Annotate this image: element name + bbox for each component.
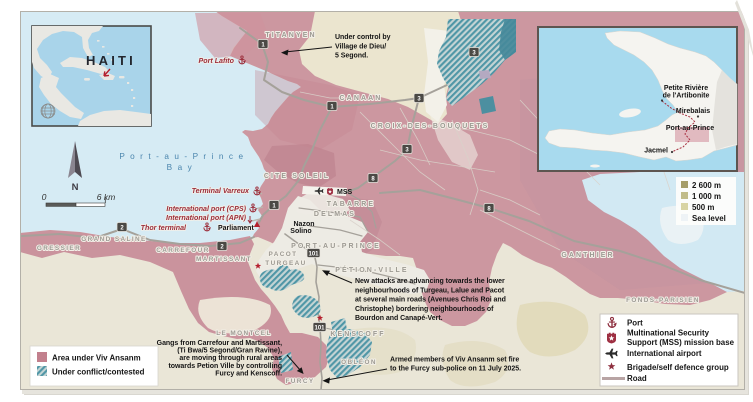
svg-text:Brigade/self defence group: Brigade/self defence group	[627, 363, 729, 372]
svg-text:LE MONTCEL: LE MONTCEL	[216, 330, 272, 337]
svg-text:KENSCOFF: KENSCOFF	[330, 331, 385, 338]
svg-text:CITE SOLEIL: CITE SOLEIL	[264, 173, 330, 180]
svg-text:1 000 m: 1 000 m	[692, 192, 721, 201]
svg-text:Solino: Solino	[290, 228, 311, 235]
svg-text:International port (CPS): International port (CPS)	[166, 205, 246, 213]
svg-text:Area under Viv Ansanm: Area under Viv Ansanm	[52, 354, 141, 363]
svg-text:International airport: International airport	[627, 349, 702, 358]
svg-text:Armed members of Viv Ansanm se: Armed members of Viv Ansanm set fire	[390, 357, 519, 364]
svg-text:MSS: MSS	[337, 189, 353, 196]
svg-text:Christophe) bordering neighbou: Christophe) bordering neighbourhoods of	[355, 306, 494, 313]
svg-text:PÉTION-VILLE: PÉTION-VILLE	[335, 265, 408, 274]
svg-text:de l'Artibonite: de l'Artibonite	[663, 93, 710, 100]
svg-text:FONDS-PARISIEN: FONDS-PARISIEN	[626, 297, 700, 304]
svg-text:TITANYEN: TITANYEN	[265, 32, 316, 39]
svg-text:Nazon: Nazon	[294, 221, 315, 228]
svg-text:N: N	[72, 182, 79, 193]
svg-text:neighbourhoods of Turgeau, Lal: neighbourhoods of Turgeau, Lalue and Pac…	[355, 287, 505, 294]
svg-text:(Ti Bwa/5 Segond/Gran Ravine),: (Ti Bwa/5 Segond/Gran Ravine),	[177, 348, 282, 355]
svg-text:FURCY: FURCY	[285, 378, 314, 385]
svg-text:Under control by: Under control by	[335, 34, 391, 41]
svg-text:Mirebalais: Mirebalais	[676, 108, 710, 115]
svg-text:towards Petion Ville by contro: towards Petion Ville by controlling	[168, 363, 282, 370]
svg-text:MARTISSANT: MARTISSANT	[196, 256, 252, 263]
svg-text:are moving through rural areas: are moving through rural areas	[179, 355, 282, 362]
svg-text:Sea level: Sea level	[692, 214, 726, 223]
svg-text:HAITI: HAITI	[86, 53, 136, 68]
svg-text:Bourdon and Canapé-Vert.: Bourdon and Canapé-Vert.	[355, 315, 443, 322]
svg-text:Road: Road	[627, 374, 647, 383]
svg-text:Port: Port	[627, 319, 643, 328]
svg-text:Furcy and Kenscoff.: Furcy and Kenscoff.	[215, 370, 282, 377]
svg-text:CANAAN: CANAAN	[340, 95, 383, 102]
svg-text:Under conflict/contested: Under conflict/contested	[52, 368, 145, 377]
svg-text:to the Furcy sub-police on 11: to the Furcy sub-police on 11 July 2025.	[390, 366, 521, 373]
svg-text:2 600 m: 2 600 m	[692, 181, 721, 190]
svg-text:Village de Dieu/: Village de Dieu/	[335, 43, 386, 50]
svg-text:Port-au-Prince: Port-au-Prince	[666, 125, 714, 132]
svg-text:PORT-AU-PRINCE: PORT-AU-PRINCE	[291, 243, 381, 250]
svg-text:0: 0	[42, 192, 47, 202]
svg-text:New attacks are advancing towa: New attacks are advancing towards the lo…	[355, 278, 505, 285]
svg-text:Jacmel: Jacmel	[644, 148, 668, 155]
svg-text:Gangs from Carrefour and Marti: Gangs from Carrefour and Martissant,	[157, 340, 282, 347]
svg-text:Parliament: Parliament	[218, 225, 254, 232]
svg-text:101: 101	[314, 325, 325, 331]
svg-text:B a y: B a y	[167, 163, 194, 172]
svg-text:GANTHIER: GANTHIER	[561, 252, 614, 259]
svg-text:CROIX-DES-BOUQUETS: CROIX-DES-BOUQUETS	[371, 123, 490, 130]
svg-text:Thor terminal: Thor terminal	[141, 224, 187, 232]
svg-text:TABARRE: TABARRE	[327, 201, 375, 208]
svg-text:101: 101	[308, 251, 319, 257]
svg-text:Terminal Varreux: Terminal Varreux	[192, 187, 250, 195]
svg-text:500 m: 500 m	[692, 203, 714, 212]
svg-text:6 km: 6 km	[97, 192, 116, 202]
svg-text:TURGEAU: TURGEAU	[265, 260, 306, 267]
svg-text:PACOT: PACOT	[269, 251, 298, 258]
svg-text:5 Segond.: 5 Segond.	[335, 53, 368, 60]
svg-text:CARREFOUR: CARREFOUR	[156, 247, 209, 254]
svg-text:GRESSIER: GRESSIER	[37, 245, 81, 252]
svg-text:Support (MSS) mission base: Support (MSS) mission base	[627, 338, 735, 347]
svg-text:Petite Rivière: Petite Rivière	[664, 85, 708, 92]
svg-text:P o r t - a u - P r i n c e: P o r t - a u - P r i n c e	[119, 152, 244, 161]
svg-text:Multinational Security: Multinational Security	[627, 329, 710, 338]
svg-text:GRAND SALINE: GRAND SALINE	[81, 236, 146, 243]
svg-text:Port Lafito: Port Lafito	[199, 57, 235, 65]
svg-text:OBLÉON: OBLÉON	[341, 357, 377, 366]
svg-text:DELMAS: DELMAS	[314, 211, 356, 218]
svg-text:at several main roads (Avenues: at several main roads (Avenues Chris Roi…	[355, 297, 506, 304]
svg-text:International port (APN): International port (APN)	[166, 214, 247, 222]
